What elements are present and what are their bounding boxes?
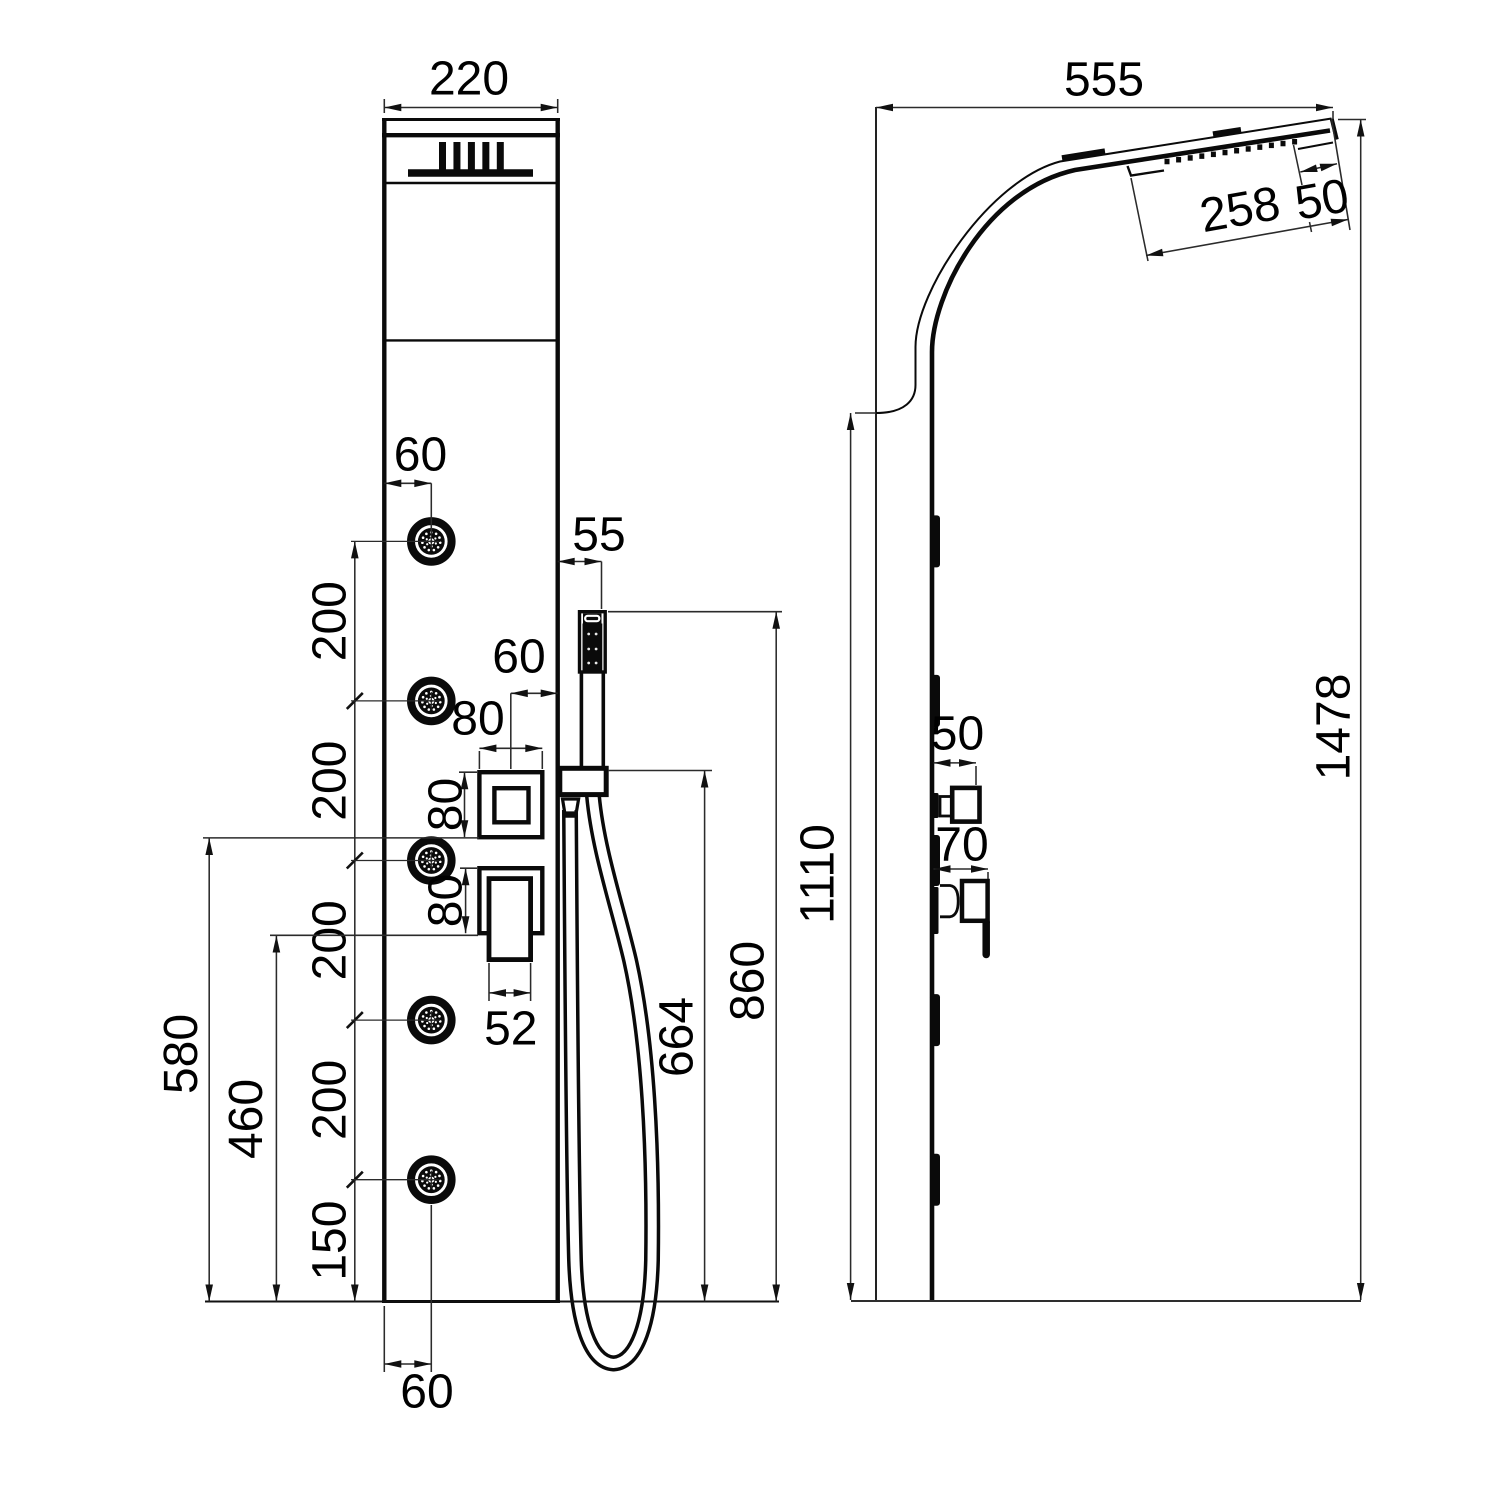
- svg-text:1478: 1478: [1308, 674, 1361, 781]
- svg-text:60: 60: [400, 1366, 453, 1419]
- svg-text:200: 200: [304, 741, 357, 821]
- svg-text:80: 80: [420, 874, 473, 927]
- svg-text:200: 200: [304, 900, 357, 980]
- svg-text:220: 220: [429, 53, 509, 106]
- svg-text:50: 50: [931, 708, 984, 761]
- svg-text:555: 555: [1064, 54, 1144, 107]
- svg-text:70: 70: [935, 819, 988, 872]
- svg-text:50: 50: [1291, 169, 1353, 230]
- svg-text:580: 580: [155, 1014, 208, 1094]
- svg-text:200: 200: [304, 581, 357, 661]
- svg-text:664: 664: [651, 997, 704, 1077]
- svg-text:200: 200: [304, 1060, 357, 1140]
- svg-text:52: 52: [484, 1003, 537, 1056]
- svg-text:60: 60: [394, 429, 447, 482]
- svg-text:860: 860: [722, 941, 775, 1021]
- svg-text:80: 80: [451, 693, 504, 746]
- svg-text:55: 55: [572, 509, 625, 562]
- svg-text:80: 80: [420, 778, 473, 831]
- svg-text:1110: 1110: [792, 824, 845, 924]
- svg-text:60: 60: [492, 631, 545, 684]
- svg-text:460: 460: [220, 1079, 273, 1159]
- svg-text:150: 150: [304, 1201, 357, 1281]
